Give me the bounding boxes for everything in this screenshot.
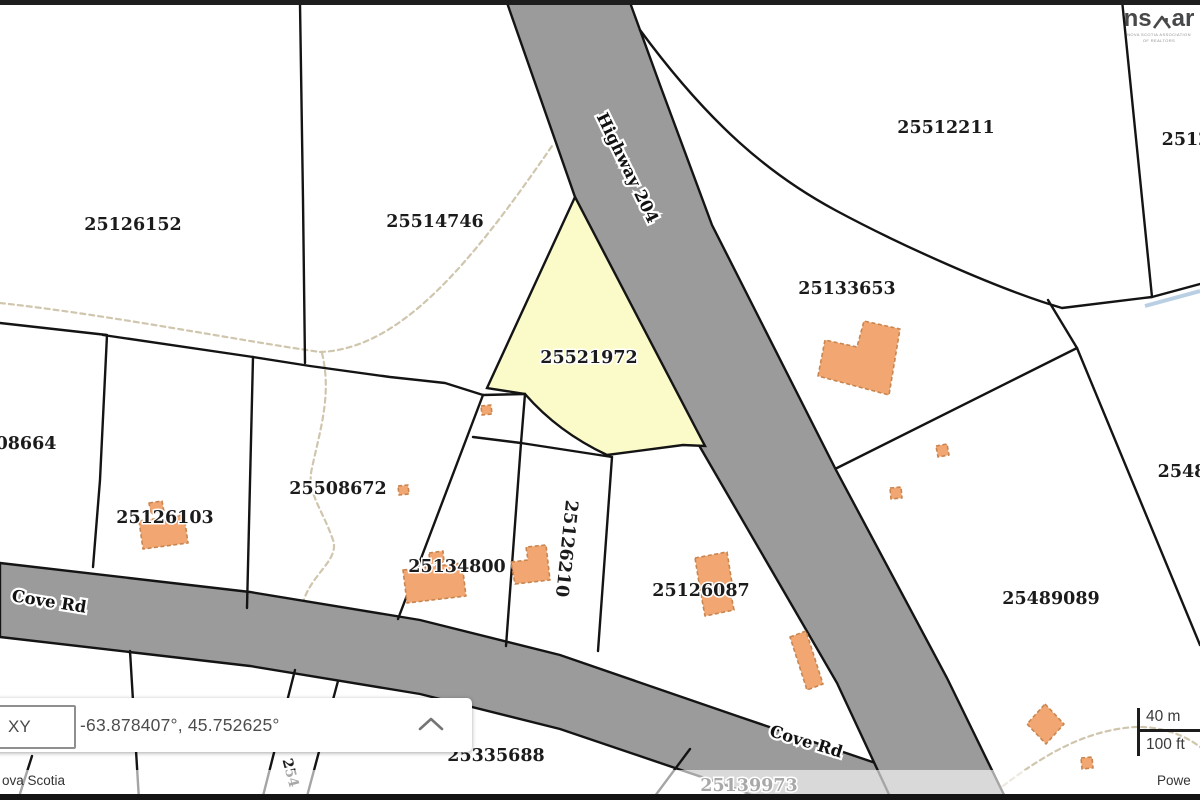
building [398,485,409,495]
map-viewer: 25126152 25514746 25512211 2512 25133653… [0,0,1200,800]
logo-text-ar: ar [1172,7,1195,31]
building [890,487,902,499]
logo-tagline-1: NOVA SCOTIA ASSOCIATION [1120,33,1198,37]
coordinate-panel: XY -63.878407°, 45.752625° [0,698,472,752]
scale-metric-label: 40 m [1146,708,1180,726]
parcel-label: 25489089 [1002,589,1099,609]
attribution-bar: ova Scotia Powe [0,770,1200,794]
top-border-bar [0,0,1200,5]
building [1081,757,1093,769]
coordinate-format-select[interactable]: XY [0,705,76,749]
parcel-label: 25508672 [289,479,386,499]
logo-text-ns: ns [1124,7,1152,31]
scale-bar-line [1137,729,1200,732]
parcel-label: 25134800 [408,557,505,577]
building [936,444,949,457]
parcel-label: 25514746 [386,212,483,232]
parcel-label: 25126103 [116,508,213,528]
collapse-chevron-icon[interactable] [416,715,446,733]
parcel-label: 25133653 [798,279,895,299]
building [481,405,492,415]
parcel-label: 2548 [1158,462,1200,482]
logo-tagline-2: OF REALTORS [1120,39,1198,43]
scale-imperial-label: 100 ft [1146,736,1185,754]
roof-icon [1153,15,1171,29]
bottom-border-bar [0,794,1200,800]
parcel-label: 25126087 [652,581,749,601]
nsar-logo: ns ar NOVA SCOTIA ASSOCIATION OF REALTOR… [1120,7,1198,49]
parcel-label: 2512 [1162,130,1200,150]
parcel-label: 25126152 [84,215,181,235]
attribution-text: ova Scotia [2,773,65,788]
parcel-label: 25512211 [897,118,994,138]
scale-bar: 40 m 100 ft [1130,700,1200,762]
map-canvas[interactable]: 25126152 25514746 25512211 2512 25133653… [0,0,1200,800]
coordinate-format-label: XY [8,717,31,737]
parcel-label: 08664 [0,434,56,454]
attribution-powered-by: Powe [1157,773,1191,788]
parcel-label-highlighted: 25521972 [540,348,637,368]
coordinate-readout: -63.878407°, 45.752625° [80,698,280,752]
scale-bar-tick [1137,708,1140,756]
